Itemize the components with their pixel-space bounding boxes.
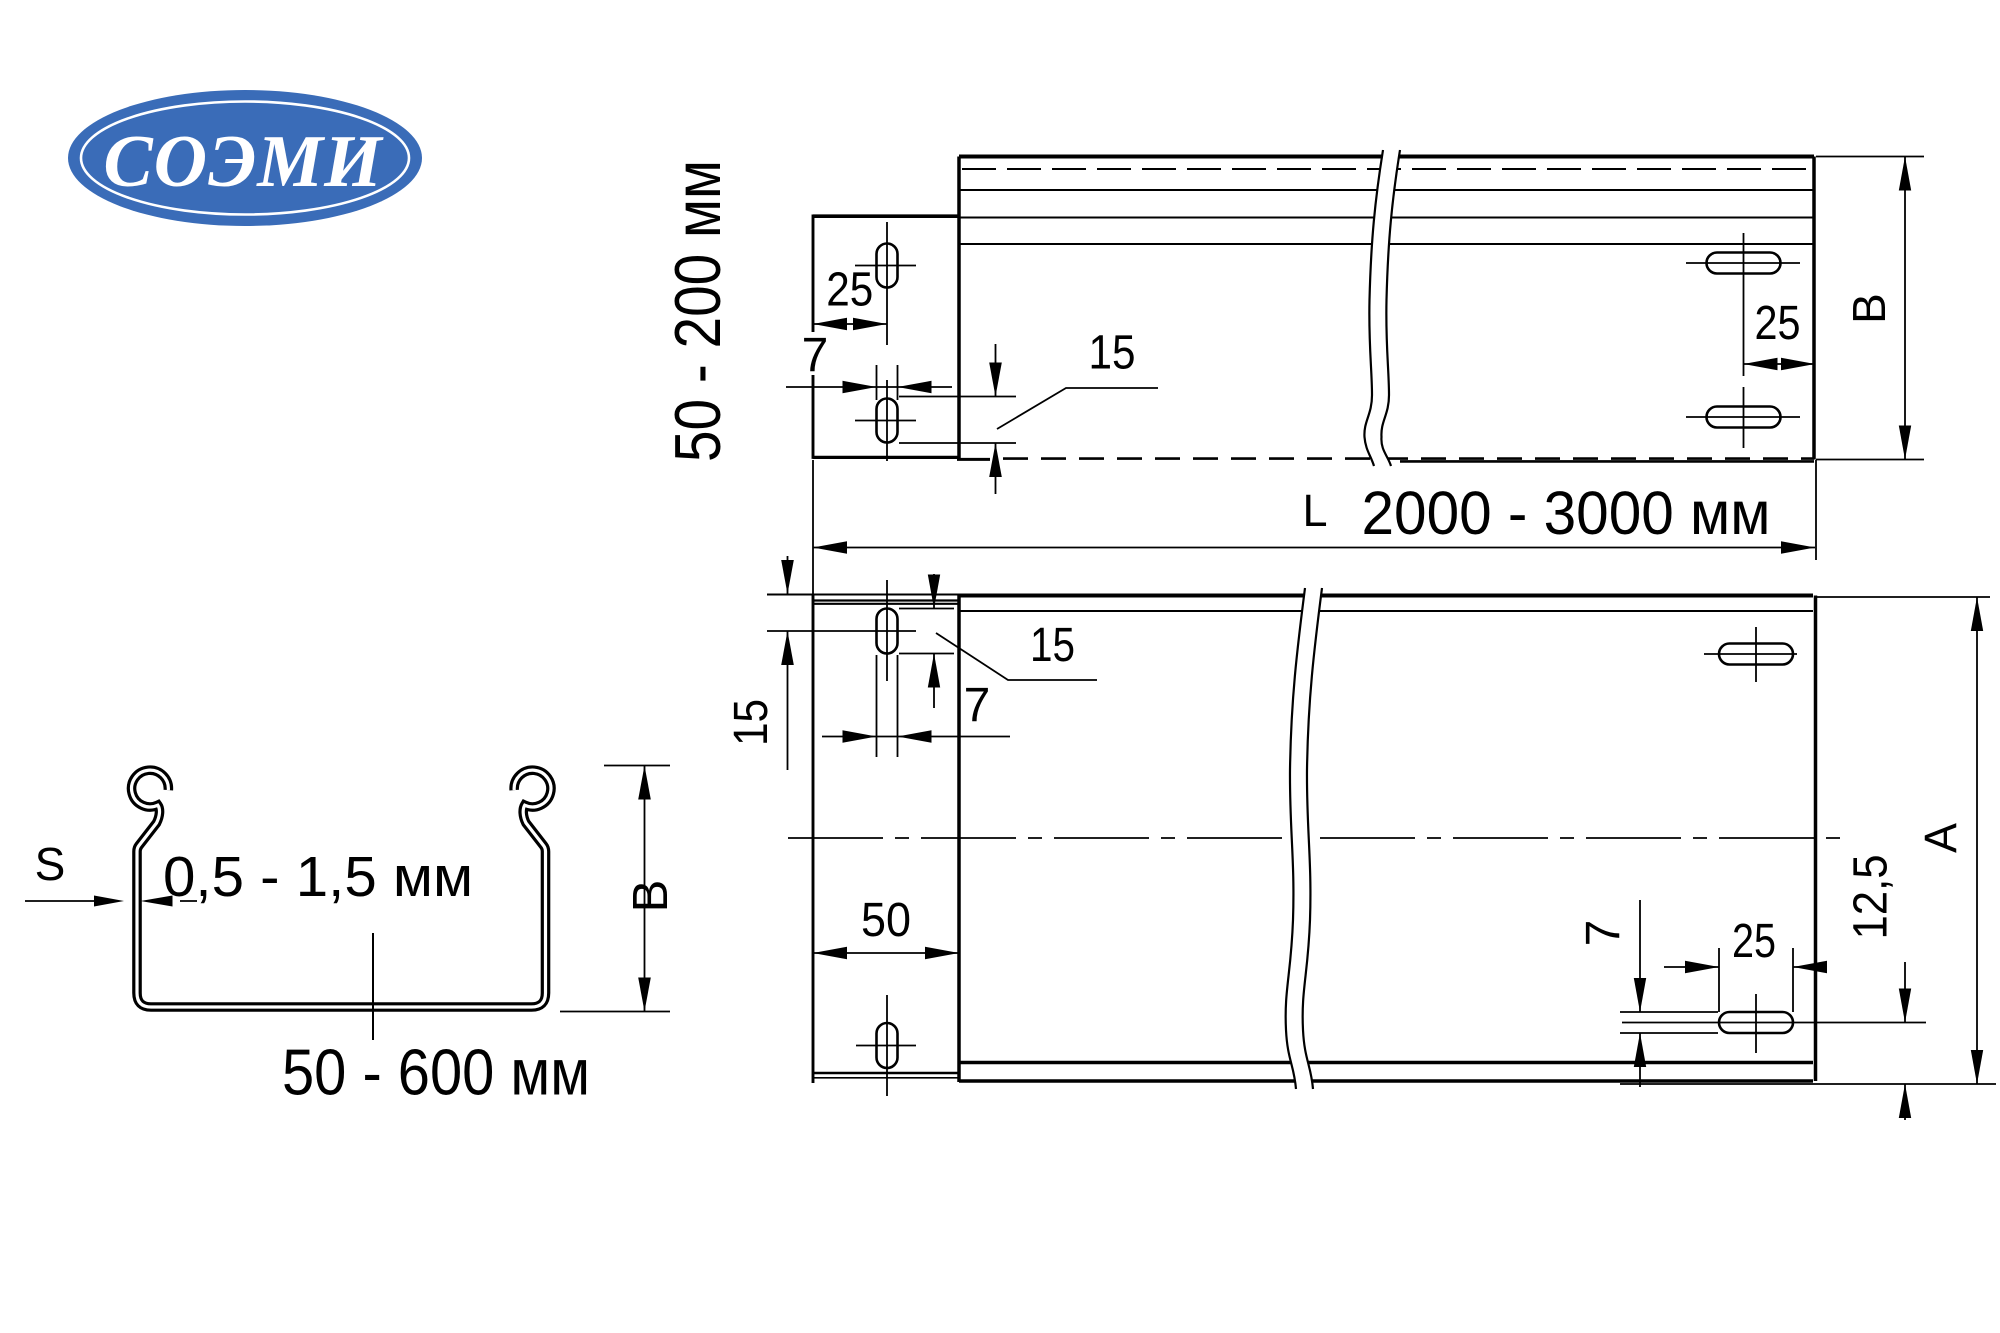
svg-text:L: L: [1302, 485, 1327, 536]
svg-text:15: 15: [1030, 619, 1075, 672]
svg-text:A: A: [1915, 823, 1966, 853]
svg-text:25: 25: [826, 264, 873, 317]
svg-text:50 - 600 мм: 50 - 600 мм: [282, 1037, 590, 1109]
svg-text:2000 - 3000 мм: 2000 - 3000 мм: [1362, 479, 1771, 547]
svg-text:7: 7: [964, 679, 991, 732]
svg-text:50 - 200 мм: 50 - 200 мм: [661, 160, 734, 462]
svg-text:25: 25: [1732, 915, 1776, 968]
svg-text:12,5: 12,5: [1845, 855, 1898, 940]
svg-text:0,5 - 1,5 мм: 0,5 - 1,5 мм: [163, 845, 473, 909]
svg-text:S: S: [35, 838, 66, 890]
svg-text:СОЭМИ: СОЭМИ: [103, 121, 384, 203]
svg-text:7: 7: [1577, 920, 1630, 947]
svg-text:15: 15: [725, 699, 778, 746]
svg-text:25: 25: [1755, 297, 1801, 350]
svg-text:7: 7: [802, 329, 829, 382]
svg-text:15: 15: [1089, 327, 1136, 380]
svg-text:50: 50: [861, 894, 911, 947]
svg-text:B: B: [1843, 293, 1895, 324]
svg-text:B: B: [624, 880, 678, 913]
